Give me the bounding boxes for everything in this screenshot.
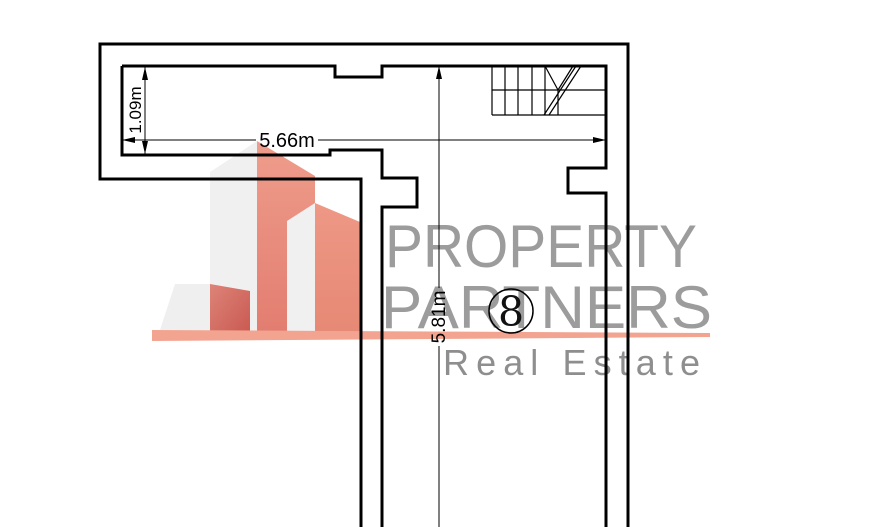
watermark-building-left-small [158,284,210,336]
dimension-label-1-09m: 1.09m [126,86,145,133]
watermark-building-right-red-face [315,203,360,336]
dimension-arrow-down [142,141,148,154]
stairs-v-line-right [558,66,573,90]
dimension-arrow-right [593,137,606,143]
stairs [492,66,606,115]
watermark-building-right-gray-face [287,203,315,336]
dimension-arrow-left [122,137,135,143]
floor-plan-page: PROPERTY PARTNERS Real Estate [0,0,880,527]
watermark-building-small-red [210,284,250,336]
dimension-arrow-up [436,66,442,79]
dimension-arrow-up [142,67,148,80]
room-number: 8 [498,288,524,336]
floor-plan-canvas: PROPERTY PARTNERS Real Estate [0,0,880,527]
watermark-text-property: PROPERTY [385,213,697,280]
stairs-v-line-left [545,66,558,90]
watermark-text-real-estate: Real Estate [443,342,700,383]
dimension-top-width [122,137,606,143]
dimension-label-5-81m: 5.81m [429,291,450,344]
dimension-label-5-66m: 5.66m [259,130,315,152]
